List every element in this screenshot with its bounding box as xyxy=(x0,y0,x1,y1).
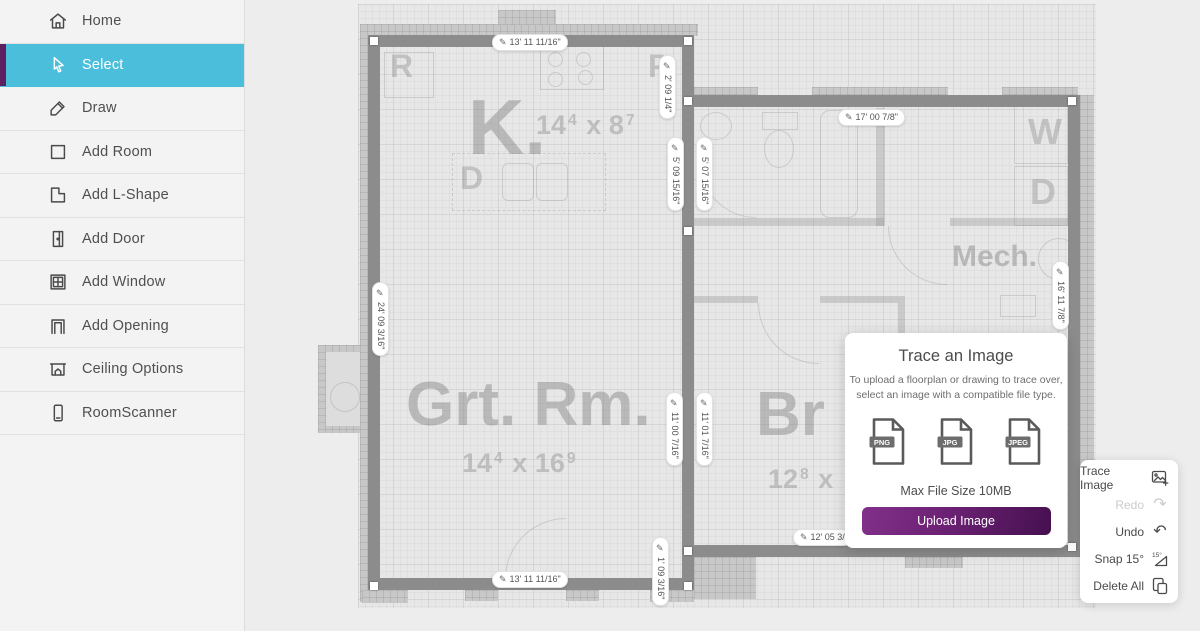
dimension-value: 13' 11 11/16" xyxy=(510,37,561,48)
edit-pencil-icon[interactable]: ✎ xyxy=(1055,268,1066,278)
floorplan-app: K. 144 x 87 Grt. Rm. 144 x 169 Br 128 x … xyxy=(0,0,1200,631)
dimension-label[interactable]: ✎ 5' 09 15/16" xyxy=(667,137,684,211)
active-strip xyxy=(0,44,6,87)
file-type-badge: JPEG xyxy=(1008,438,1028,447)
l-shape-icon xyxy=(47,184,69,206)
sidebar-item-home[interactable]: Home xyxy=(0,0,244,44)
sidebar-item-ceiling-options[interactable]: Ceiling Options xyxy=(0,348,244,392)
modal-body-text: To upload a floorplan or drawing to trac… xyxy=(845,373,1067,402)
dimension-label[interactable]: ✎ 24' 09 3/16" xyxy=(372,282,389,356)
file-type-badge: JPG xyxy=(942,438,957,447)
window-icon xyxy=(47,271,69,293)
dimension-label[interactable]: ✎ 12' 05 3/ xyxy=(793,529,852,546)
modal-body-line1: To upload a floorplan or drawing to trac… xyxy=(849,374,1062,386)
ceiling-icon xyxy=(47,358,69,380)
wall-handle[interactable] xyxy=(684,547,692,555)
sidebar-item-draw[interactable]: Draw xyxy=(0,87,244,131)
file-type-badge: PNG xyxy=(874,438,890,447)
undo-icon: ↶ xyxy=(1151,523,1169,541)
underlay-bay-fixture xyxy=(330,382,360,412)
dimension-value: 13' 11 11/16" xyxy=(510,574,561,585)
sidebar-item-label: Add Opening xyxy=(82,318,169,334)
dimension-label[interactable]: ✎ 16' 11 7/8" xyxy=(1052,261,1069,330)
edit-pencil-icon[interactable]: ✎ xyxy=(670,144,681,154)
edit-pencil-icon[interactable]: ✎ xyxy=(699,399,710,409)
cursor-icon xyxy=(47,54,69,76)
wall-handle[interactable] xyxy=(684,97,692,105)
wall-handle[interactable] xyxy=(684,37,692,45)
dimension-value: 5' 09 15/16" xyxy=(670,157,681,204)
redo-icon: ↷ xyxy=(1151,496,1169,514)
underlay-window-tab xyxy=(362,590,408,603)
dimension-value: 1' 09 3/16" xyxy=(655,557,666,599)
edit-pencil-icon[interactable]: ✎ xyxy=(499,37,507,48)
dimension-label[interactable]: ✎ 13' 11 11/16" xyxy=(492,34,568,51)
square-room-icon xyxy=(47,141,69,163)
sidebar-item-select[interactable]: Select xyxy=(0,44,244,88)
svg-text:15°: 15° xyxy=(1152,551,1162,559)
dimension-label[interactable]: ✎ 5' 07 15/16" xyxy=(696,137,713,211)
tool-label: Trace Image xyxy=(1080,464,1144,492)
traced-room-kitchen-great-room[interactable] xyxy=(368,35,694,590)
modal-title: Trace an Image xyxy=(845,347,1067,366)
dimension-value: 5' 07 15/16" xyxy=(699,157,710,204)
edit-pencil-icon[interactable]: ✎ xyxy=(375,289,386,299)
dimension-label[interactable]: ✎ 11' 01 7/16" xyxy=(696,392,713,466)
dimension-value: 16' 11 7/8" xyxy=(1055,281,1066,323)
wall-handle[interactable] xyxy=(684,582,692,590)
trace-image-button[interactable]: Trace Image xyxy=(1080,465,1178,491)
dimension-label[interactable]: ✎ 2' 09 1/4" xyxy=(659,55,676,119)
edit-pencil-icon[interactable]: ✎ xyxy=(669,399,680,409)
sidebar-item-label: Add Room xyxy=(82,144,152,160)
redo-button[interactable]: Redo ↷ xyxy=(1080,492,1178,518)
snap-angle-icon: 15° xyxy=(1151,550,1169,568)
upload-image-button[interactable]: Upload Image xyxy=(862,507,1051,535)
edit-pencil-icon[interactable]: ✎ xyxy=(499,574,507,585)
wall-handle[interactable] xyxy=(1068,543,1076,551)
undo-button[interactable]: Undo ↶ xyxy=(1080,519,1178,545)
trace-image-modal: Trace an Image To upload a floorplan or … xyxy=(845,333,1067,548)
png-file-icon: PNG xyxy=(867,417,909,467)
wall-handle[interactable] xyxy=(370,582,378,590)
wall-handle[interactable] xyxy=(1068,97,1076,105)
pencil-icon xyxy=(47,97,69,119)
delete-all-button[interactable]: Delete All xyxy=(1080,573,1178,599)
modal-body-line2: select an image with a compatible file t… xyxy=(856,389,1056,401)
dimension-value: 11' 01 7/16" xyxy=(699,412,710,459)
delete-all-icon xyxy=(1151,577,1169,595)
sidebar-item-add-window[interactable]: Add Window xyxy=(0,261,244,305)
sidebar: Home Select Draw Add Room xyxy=(0,0,245,631)
sidebar-item-add-l-shape[interactable]: Add L-Shape xyxy=(0,174,244,218)
dimension-label[interactable]: ✎ 17' 00 7/8" xyxy=(838,109,905,126)
underlay-window-tab xyxy=(905,557,963,568)
dimension-label[interactable]: ✎ 13' 11 11/16" xyxy=(492,571,568,588)
tool-label: Undo xyxy=(1115,525,1144,539)
dimension-label[interactable]: ✎ 1' 09 3/16" xyxy=(652,537,669,606)
tool-label: Delete All xyxy=(1093,579,1144,593)
jpg-file-icon: JPG xyxy=(935,417,977,467)
sidebar-item-label: Add L-Shape xyxy=(82,187,169,203)
edit-pencil-icon[interactable]: ✎ xyxy=(699,144,710,154)
underlay-steps xyxy=(694,557,756,599)
sidebar-item-add-door[interactable]: Add Door xyxy=(0,218,244,262)
edit-pencil-icon[interactable]: ✎ xyxy=(845,112,853,123)
dimension-value: 2' 09 1/4" xyxy=(662,75,673,112)
home-icon xyxy=(47,10,69,32)
dimension-value: 11' 00 7/16" xyxy=(669,412,680,459)
trace-image-icon xyxy=(1151,469,1169,487)
sidebar-item-label: Draw xyxy=(82,100,117,116)
opening-icon xyxy=(47,315,69,337)
wall-handle[interactable] xyxy=(684,227,692,235)
sidebar-item-label: RoomScanner xyxy=(82,405,177,421)
dimension-value: 12' 05 3/ xyxy=(811,532,845,543)
edit-pencil-icon[interactable]: ✎ xyxy=(662,62,673,72)
door-icon xyxy=(47,228,69,250)
sidebar-item-label: Ceiling Options xyxy=(82,361,183,377)
edit-pencil-icon[interactable]: ✎ xyxy=(655,544,666,554)
max-file-size-text: Max File Size 10MB xyxy=(845,484,1067,498)
sidebar-item-add-opening[interactable]: Add Opening xyxy=(0,305,244,349)
tool-label: Redo xyxy=(1115,498,1144,512)
sidebar-item-label: Add Window xyxy=(82,274,165,290)
snap-angle-button[interactable]: Snap 15° 15° xyxy=(1080,546,1178,572)
edit-pencil-icon[interactable]: ✎ xyxy=(800,532,808,543)
wall-handle[interactable] xyxy=(370,37,378,45)
underlay-chimney xyxy=(498,10,556,25)
sidebar-item-label: Add Door xyxy=(82,231,145,247)
sidebar-item-add-room[interactable]: Add Room xyxy=(0,131,244,175)
dimension-label[interactable]: ✎ 11' 00 7/16" xyxy=(666,392,683,466)
file-type-icons: PNG JPG JPEG xyxy=(845,417,1067,467)
phone-icon xyxy=(47,402,69,424)
underlay-window-tab xyxy=(465,590,498,601)
tool-label: Snap 15° xyxy=(1094,552,1144,566)
underlay-window-tab xyxy=(566,590,599,601)
sidebar-item-roomscanner[interactable]: RoomScanner xyxy=(0,392,244,436)
jpeg-file-icon: JPEG xyxy=(1003,417,1045,467)
sidebar-item-label: Select xyxy=(82,57,124,73)
canvas-tool-panel: Trace Image Redo ↷ Undo ↶ Snap 15° 15° D… xyxy=(1080,460,1178,603)
sidebar-item-label: Home xyxy=(82,13,121,29)
dimension-value: 17' 00 7/8" xyxy=(856,112,898,123)
dimension-value: 24' 09 3/16" xyxy=(375,302,386,349)
